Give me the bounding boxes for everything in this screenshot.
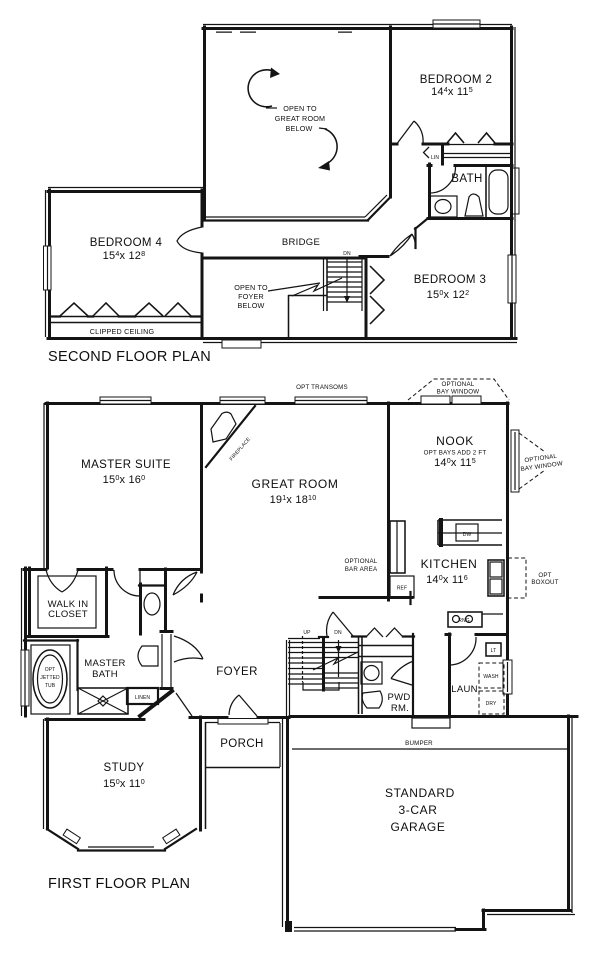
svg-text:GARAGE: GARAGE [391,820,446,834]
svg-text:140x 115: 140x 115 [434,456,476,469]
svg-text:PWD: PWD [387,692,410,703]
svg-text:BELOW: BELOW [238,301,265,310]
svg-text:LT: LT [491,648,497,654]
svg-text:BOXOUT: BOXOUT [531,579,558,586]
svg-text:144x 115: 144x 115 [431,85,473,98]
svg-text:KITCHEN: KITCHEN [421,557,478,571]
svg-text:LIN: LIN [431,155,439,161]
svg-text:DN: DN [334,630,342,636]
svg-text:3-CAR: 3-CAR [398,803,437,817]
svg-text:OPT BAYS ADD 2 FT: OPT BAYS ADD 2 FT [424,450,487,457]
svg-text:OPTIONAL: OPTIONAL [345,558,378,565]
svg-text:OPT: OPT [45,667,56,673]
svg-text:CLIPPED CEILING: CLIPPED CEILING [90,327,155,336]
svg-text:DRY: DRY [486,701,497,707]
svg-text:FIRST FLOOR PLAN: FIRST FLOOR PLAN [48,876,190,892]
svg-text:TUB: TUB [45,683,56,689]
svg-text:BAY WINDOW: BAY WINDOW [437,389,480,396]
svg-text:BAR AREA: BAR AREA [345,566,378,573]
svg-text:MASTER: MASTER [84,658,125,669]
svg-text:REF: REF [397,586,407,592]
svg-text:FOYER: FOYER [216,666,258,678]
svg-text:140x 116: 140x 116 [426,573,468,586]
svg-text:NOOK: NOOK [436,434,474,448]
svg-text:154x 128: 154x 128 [103,249,146,262]
svg-text:LINEN: LINEN [135,695,151,701]
svg-text:STANDARD: STANDARD [385,786,455,800]
svg-text:OPTIONAL: OPTIONAL [442,381,475,388]
svg-text:UP: UP [303,630,311,636]
svg-text:SECOND FLOOR PLAN: SECOND FLOOR PLAN [48,349,211,365]
svg-text:BRIDGE: BRIDGE [282,237,320,248]
svg-text:RM.: RM. [391,703,409,714]
svg-text:BELOW: BELOW [286,124,313,133]
svg-text:BEDROOM 4: BEDROOM 4 [90,237,163,249]
svg-text:OPT TRANSOMS: OPT TRANSOMS [296,384,348,391]
svg-text:150x 160: 150x 160 [103,473,146,486]
svg-text:RNG: RNG [458,618,469,624]
svg-text:CLOSET: CLOSET [48,609,88,620]
svg-text:STUDY: STUDY [104,762,145,774]
svg-text:BATH: BATH [92,669,118,680]
svg-text:BEDROOM 2: BEDROOM 2 [420,74,493,86]
svg-text:OPT: OPT [538,572,551,579]
svg-text:DW: DW [463,532,472,538]
svg-text:GREAT ROOM: GREAT ROOM [252,477,339,491]
svg-text:FOYER: FOYER [238,292,264,301]
svg-text:LAUN.: LAUN. [451,684,480,695]
svg-text:WASH: WASH [483,674,499,680]
svg-text:PORCH: PORCH [220,738,264,750]
svg-text:BUMPER: BUMPER [405,740,433,747]
svg-text:BATH: BATH [451,173,482,185]
svg-text:OPEN TO: OPEN TO [234,283,268,292]
svg-text:MASTER SUITE: MASTER SUITE [81,459,171,471]
svg-text:JETTED: JETTED [40,675,60,681]
svg-text:GREAT ROOM: GREAT ROOM [275,114,325,123]
svg-text:BEDROOM 3: BEDROOM 3 [414,274,487,286]
svg-text:DN: DN [343,251,351,257]
svg-text:150x 122: 150x 122 [427,288,470,301]
svg-text:OPEN TO: OPEN TO [283,104,317,113]
svg-text:150x 110: 150x 110 [103,777,145,790]
